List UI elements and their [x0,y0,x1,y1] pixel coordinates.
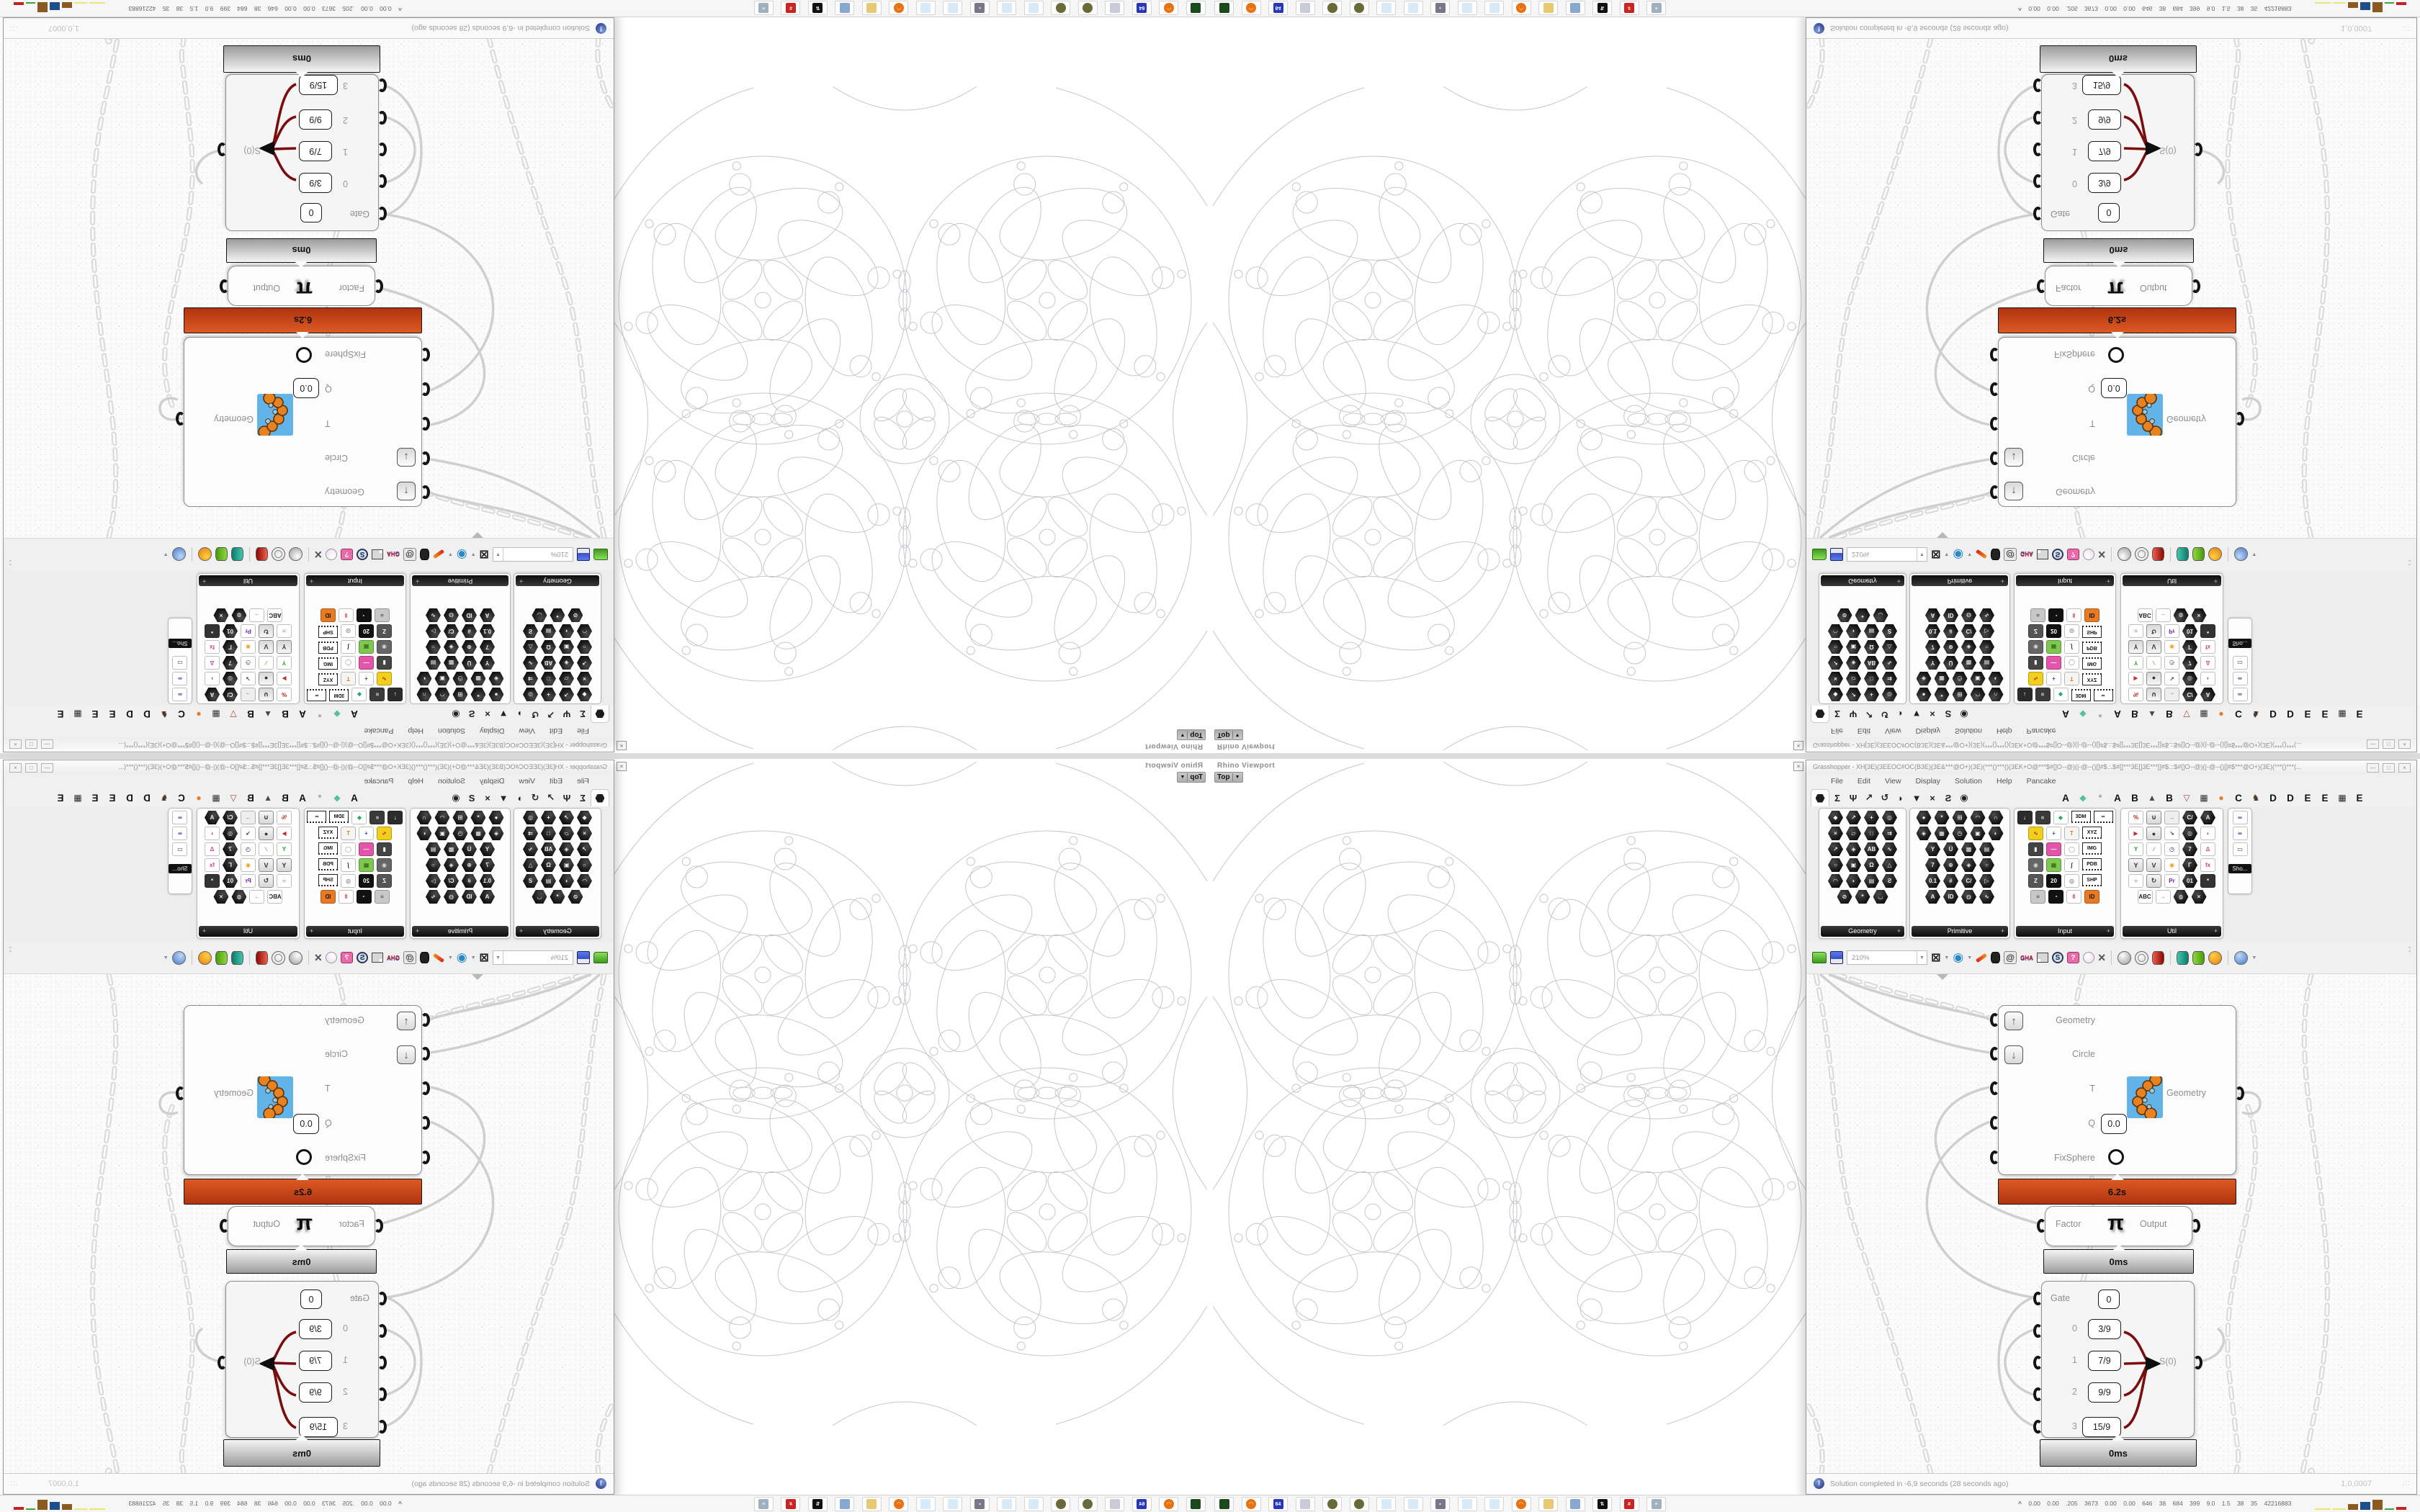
taskbar-notepad-icon[interactable] [1458,1,1477,15]
palette-icon[interactable]: Pr [2164,874,2179,888]
palette-hex-icon[interactable]: ◍ [444,890,459,904]
stream-value-box[interactable]: 3/9 [299,1319,332,1339]
window-resize-grip[interactable]: .:: [9,1480,17,1488]
tab-mesh-funnel[interactable]: ▼ [1909,709,1924,720]
toolbar-sphere-orange-icon[interactable] [198,949,212,966]
palette-hex-icon[interactable]: ▦ [471,672,486,685]
palette-hex-icon[interactable]: ◷ [453,672,468,685]
palette-hex-icon[interactable]: * [550,890,565,904]
chevron-down-icon[interactable]: ▼ [1180,732,1185,737]
palette-hex-icon[interactable]: * [1855,608,1870,622]
palette-icon[interactable]: ◷ [241,656,256,670]
palette-boxed-icon[interactable]: ● [259,827,274,840]
graft-arrow-down-icon[interactable]: ↓ [397,448,416,467]
toolbar-pink-box-icon[interactable]: ? [2067,952,2079,963]
taskbar-firefox-icon[interactable]: ◠ [1160,1497,1179,1511]
palette-hex-icon[interactable]: ● [1917,811,1932,824]
taskbar-document-icon[interactable] [1106,1,1125,15]
taskbar-folder-icon[interactable] [1538,1,1558,15]
palette-hex-icon[interactable]: Ƨ [523,874,538,888]
palette-hex-icon[interactable]: ▣ [1846,640,1861,654]
palette-hex-icon[interactable]: 01 [223,874,238,888]
palette-hex-icon[interactable]: ▷ [1979,874,1994,888]
palette-hex-icon[interactable]: ◡ [532,608,547,622]
stream-value-box[interactable]: 3/9 [2088,173,2121,193]
plugin-tab-b-6[interactable]: B [2161,793,2178,804]
stream-value-box[interactable]: 9/9 [2088,1382,2121,1403]
input-grip[interactable] [1990,451,1999,465]
palette-icon[interactable]: ○ [277,624,292,638]
palette-icon[interactable]: ○ [2128,874,2143,888]
palette-icon[interactable]: Z [377,624,392,638]
taskbar-red-grid-icon[interactable]: # [781,1,801,15]
palette-boxed-icon[interactable]: V [259,858,274,872]
toolbar-cross-arrows-icon[interactable]: × [2098,949,2106,966]
palette-hex-icon[interactable]: AB [1864,842,1879,856]
fixsphere-solver-component[interactable]: ↑ ↓ Geometry Circle T Q FixSphere 0.0 [1998,1005,2236,1175]
viewport-projection-button[interactable]: Top ▼ [1214,729,1243,740]
palette-chip-icon[interactable]: IMG [2082,842,2102,855]
plugin-tab-shield-icon[interactable]: ▽ [225,709,242,719]
palette-chip-icon[interactable]: SHP [2082,874,2102,886]
plugin-tab-waffle-dark-icon[interactable]: ▦ [69,793,86,803]
toolbar-cylinder-teal-icon[interactable] [231,949,243,966]
input-grip[interactable] [2033,111,2043,125]
taskbar-red-grid-icon[interactable]: # [1620,1497,1639,1511]
palette-boxed-icon[interactable]: V [2146,858,2161,872]
palette-icon[interactable]: Z [377,874,392,888]
menu-item-file[interactable]: File [1824,775,1850,789]
palette-expand-icon[interactable]: + [2001,575,2004,586]
palette-hex-icon[interactable]: ◍ [232,608,247,622]
input-grip[interactable] [1990,1151,1999,1164]
palette-hex-icon[interactable]: ◈ [489,672,504,685]
palette-hex-icon[interactable]: ▤ [426,842,441,856]
palette-hex-icon[interactable]: 7 [2182,656,2197,670]
palette-hex-icon[interactable]: + [541,688,556,701]
stream-value-box[interactable]: 15/9 [2082,75,2121,95]
palette-hex-icon[interactable]: ◎ [223,672,238,685]
palette-hex-icon[interactable]: ◐ [417,672,432,685]
tab-curve-spiral[interactable]: ↺ [1877,792,1893,804]
toolbar-at-ball-icon[interactable]: @ [403,951,416,964]
toolbar-viewport-capture-icon[interactable] [372,546,383,563]
palette-hex-icon[interactable]: ◈ [444,858,459,872]
palette-boxed-icon[interactable]: ↻ [259,874,274,888]
palette-icon[interactable]: fx [205,640,220,654]
graft-arrow-down-icon[interactable]: ↓ [2004,1045,2023,1064]
palette-icon[interactable]: ■ [2035,811,2051,824]
output-grip[interactable] [2191,279,2200,293]
palette-hex-icon[interactable]: ◈ [1961,640,1976,654]
plugin-tab-gem-icon[interactable]: ◆ [2074,709,2092,719]
panel-close-button[interactable]: × [617,762,627,771]
palette-hex-icon[interactable]: × [214,890,229,904]
plugin-tab-a-0[interactable]: A [2057,793,2074,804]
palette-chip-icon[interactable]: PDB [2082,642,2102,654]
menu-item-pancake[interactable]: Pancake [2020,775,2063,789]
chevron-down-icon[interactable]: ▼ [1180,775,1185,780]
taskbar-medal-icon[interactable] [1078,1,1098,15]
palette-chip-icon[interactable]: PDB [2082,858,2102,870]
tab-display-eye[interactable]: ◉ [1956,792,1972,804]
palette-hex-icon[interactable]: C/ [223,688,238,701]
menu-item-help[interactable]: Help [400,775,431,789]
palette-icon[interactable]: + [2046,827,2061,840]
palette-hex-icon[interactable]: ↗ [1828,656,1843,670]
stream-value-box[interactable]: 9/9 [299,109,332,130]
palette-hex-icon[interactable]: Y [480,656,495,670]
palette-icon[interactable]: ◉ [2164,640,2179,654]
plugin-tab-d-13[interactable]: D [121,793,138,804]
palette-icon[interactable]: ◉ [241,858,256,872]
palette-icon[interactable]: ∿ [2028,827,2043,840]
palette-icon[interactable]: ABC [268,890,283,904]
taskbar-notepad-icon[interactable] [998,1497,1017,1511]
palette-hex-icon[interactable]: ◍ [1961,608,1976,622]
palette-hex-icon[interactable]: ◠ [1971,688,1986,701]
toolbar-caret-icon[interactable]: ▼ [2251,546,2257,563]
palette-icon[interactable]: ∞ [173,811,188,824]
plugin-tab-e-14[interactable]: E [2299,793,2316,804]
toolbar-gha-badge-icon[interactable]: GHA [387,949,400,966]
palette-hex-icon[interactable]: ↗ [577,656,592,670]
tab-params-hexagon[interactable] [591,706,609,723]
output-grip[interactable] [218,1356,227,1369]
palette-hex-icon[interactable]: ◎ [1882,688,1897,701]
toolbar-cylinder-green-icon[interactable] [215,949,228,966]
palette-hex-icon[interactable]: C/ [1961,624,1976,638]
fixsphere-solver-component[interactable]: ↑ ↓ Geometry Circle T Q FixSphere 0.0 [184,1005,422,1175]
palette-hex-icon[interactable]: △ [523,640,538,654]
palette-hex-icon[interactable]: ⊘ [568,890,583,904]
palette-hex-icon[interactable]: 0.1 [1925,874,1940,888]
palette-expand-icon[interactable]: + [2214,926,2218,937]
input-grip[interactable] [374,1219,383,1233]
palette-hex-icon[interactable]: Ƨ [523,624,538,638]
input-grip[interactable] [421,417,430,431]
toolbar-cross-arrows-icon[interactable]: × [315,546,323,563]
palette-icon[interactable]: 20 [359,624,374,638]
palette-icon[interactable]: ◉ [241,640,256,654]
palette-icon[interactable]: % [2128,688,2143,701]
grasshopper-canvas[interactable]: ↑ ↓ Geometry Circle T Q FixSphere 0.0 [4,973,613,1473]
plugin-tab-gear-icon[interactable]: * [2092,793,2109,803]
plugin-tab-d-13[interactable]: D [121,709,138,720]
taskbar-notepad-icon[interactable] [944,1497,963,1511]
palette-icon[interactable]: * [2200,624,2215,638]
plugin-tab-b-4[interactable]: B [277,793,294,804]
palette-hex-icon[interactable]: ▦ [1935,672,1950,685]
menu-item-solution[interactable]: Solution [1948,775,1989,789]
palette-hex-icon[interactable]: ⊕ [1943,640,1958,654]
palette-icon[interactable]: ◷ [241,842,256,856]
input-grip[interactable] [421,382,430,396]
fixsphere-solver-component[interactable]: ↑ ↓ Geometry Circle T Q FixSphere 0.0 [184,337,422,507]
palette-chip-icon[interactable]: SHP [318,626,338,638]
viewport-projection-button[interactable]: Top ▼ [1177,729,1206,740]
palette-hex-icon[interactable]: ▷ [426,624,441,638]
tab-surface-leaf[interactable]: ◗ [511,793,527,804]
taskbar-notepad-icon[interactable] [1404,1,1423,15]
palette-hex-icon[interactable]: Ü [462,656,477,670]
palette-hex-icon[interactable]: Γ [2182,640,2197,654]
fixsphere-solver-component[interactable]: ↑ ↓ Geometry Circle T Q FixSphere 0.0 [1998,337,2236,507]
plugin-tab-a-3[interactable]: A [2109,709,2126,720]
palette-icon[interactable]: ■ [370,688,385,701]
palette-group-label[interactable]: Util+ [2123,575,2221,586]
palette-group-label[interactable]: Primitive+ [1912,926,2008,937]
palette-hex-icon[interactable]: * [471,688,486,701]
palette-hex-icon[interactable]: ◎ [523,811,538,824]
toolbar-bulb-icon[interactable] [326,949,337,966]
palette-icon[interactable]: ‖ [2066,608,2081,622]
palette-hex-icon[interactable]: AB [541,842,556,856]
toolbar-sketch-pen-icon[interactable] [1976,949,1987,966]
palette-hex-icon[interactable]: ◈ [1961,858,1976,872]
input-grip[interactable] [374,279,383,293]
flatten-arrow-up-icon[interactable]: ↑ [397,1012,416,1030]
palette-hex-icon[interactable]: Γ [223,640,238,654]
palette-icon[interactable]: ∿ [2028,672,2043,685]
palette-icon[interactable]: ◉ [2028,640,2043,654]
palette-hex-icon[interactable]: 01 [2182,624,2197,638]
palette-hex-icon[interactable]: ● [489,811,504,824]
toolbar-sphere-orange-icon[interactable] [198,546,212,563]
palette-hex-icon[interactable]: ⊞ [453,811,468,824]
palette-hex-icon[interactable]: ⊞ [453,688,468,701]
palette-hex-icon[interactable]: ∿ [1979,890,1994,904]
toolbar-overflow-chevron[interactable]: ⌄⌄ [2407,560,2412,567]
window-resize-grip[interactable]: .:: [9,24,17,32]
plugin-tab-dot-icon[interactable]: ● [2213,793,2230,803]
palette-icon[interactable]: ▦ [2046,858,2061,872]
palette-icon[interactable]: ABC [2138,608,2153,622]
palette-hex-icon[interactable]: ⊞ [1953,811,1968,824]
menu-item-display[interactable]: Display [472,723,511,737]
palette-expand-icon[interactable]: + [2107,926,2110,937]
plugin-tab-dot-icon[interactable]: ● [2213,709,2230,719]
taskbar-firefox-icon[interactable]: ◠ [1512,1,1531,15]
palette-expand-icon[interactable]: + [202,926,206,937]
fixsphere-toggle[interactable] [296,347,312,363]
q-value-box[interactable]: 0.0 [2101,378,2127,398]
tab-transform-ear[interactable]: Ƨ [1940,793,1956,804]
palette-icon[interactable]: Pr [2164,624,2179,638]
palette-icon[interactable]: ▭ [2233,842,2248,856]
toolbar-open-folder-icon[interactable] [593,949,608,966]
plugin-tab-b-6[interactable]: B [2161,709,2178,720]
toolbar-bulb-icon[interactable] [326,546,337,563]
palette-group-label[interactable]: Util+ [199,575,297,586]
palette-hex-icon[interactable]: 01 [2182,874,2197,888]
plugin-tab-shield-icon[interactable]: ▽ [225,793,242,803]
input-grip[interactable] [2033,207,2043,220]
stream-value-box[interactable]: 3/9 [299,173,332,193]
palette-chip-icon[interactable]: 3DM [2071,811,2091,823]
toolbar-gha-badge-icon[interactable]: GHA [2020,949,2033,966]
toolbar-zoom-extents-icon[interactable]: ⊠ [1931,949,1940,966]
palette-icon[interactable]: ∞ [173,672,188,685]
plugin-tab-d-13[interactable]: D [2282,709,2299,720]
toolbar-sphere-ring-icon[interactable] [2135,546,2148,563]
palette-icon[interactable]: ◎ [341,624,356,638]
chevron-down-icon[interactable]: ▼ [1917,951,1927,964]
panel-close-button[interactable]: × [1793,741,1803,750]
input-grip[interactable] [2033,78,2043,92]
palette-icon[interactable]: ▭ [173,842,188,856]
palette-icon[interactable]: T [2064,672,2079,685]
taskbar-notepad-icon[interactable] [1404,1497,1423,1511]
palette-icon[interactable]: ID [2084,890,2099,904]
toolbar-ball-blue-icon[interactable] [172,546,186,563]
palette-icon[interactable]: → [250,608,265,622]
plugin-tab-waffle-dark-icon[interactable]: ▦ [69,709,86,719]
palette-hex-icon[interactable]: ◍ [444,608,459,622]
toolbar-loupe-s-icon[interactable]: S [357,549,368,560]
plugin-tab-d-12[interactable]: D [2264,793,2282,804]
palette-icon[interactable]: ◉ [2028,858,2043,872]
taskbar-vm-green-icon[interactable] [1214,1,1234,15]
palette-boxed-icon[interactable]: ↻ [2146,874,2161,888]
toolbar-loupe-s-icon[interactable]: S [357,952,368,963]
palette-hex-icon[interactable]: * [471,811,486,824]
palette-hex-icon[interactable]: ID [1943,608,1958,622]
palette-boxed-icon[interactable]: Y [2128,640,2143,654]
plugin-tab-shield-icon[interactable]: ▽ [2178,709,2195,719]
toolbar-cross-arrows-icon[interactable]: × [2098,546,2106,563]
tab-curve-spiral[interactable]: ↺ [527,708,543,720]
canvas-zoom-input[interactable]: 210%▼ [493,547,573,562]
palette-hex-icon[interactable]: ◡ [1873,890,1888,904]
tab-maths-sigma[interactable]: Σ [1829,793,1845,804]
palette-chip-icon[interactable]: IMG [318,657,338,670]
palette-icon[interactable]: ■ [2035,688,2051,701]
graft-arrow-down-icon[interactable]: ↓ [397,1045,416,1064]
input-grip[interactable] [377,78,387,92]
palette-icon[interactable]: ◔ [357,890,372,904]
tab-intersect-cross[interactable]: × [1924,709,1940,720]
palette-hex-icon[interactable]: Ü [1943,656,1958,670]
plugin-tab-waffle-icon[interactable]: ▦ [207,793,225,803]
palette-group-label[interactable]: Primitive+ [412,575,508,586]
menu-item-pancake[interactable]: Pancake [357,723,401,737]
toolbar-caret-icon[interactable]: ▼ [471,949,476,966]
palette-icon[interactable]: Y [2128,842,2143,856]
palette-group-label[interactable]: Util+ [2123,926,2221,937]
input-grip[interactable] [2033,1292,2043,1305]
palette-hex-icon[interactable]: 01 [223,624,238,638]
plugin-tab-a-3[interactable]: A [294,793,311,804]
plugin-tab-c-10[interactable]: C [2230,793,2247,804]
palette-hex-icon[interactable]: ● [489,688,504,701]
taskbar-plug-icon[interactable] [835,1497,855,1511]
pi-component[interactable]: Factor π Output [2045,1206,2192,1246]
palette-icon[interactable]: ↓ [2017,811,2033,824]
toolbar-caret-icon[interactable]: ▼ [163,949,169,966]
palette-hex-icon[interactable]: ▣ [559,858,574,872]
palette-icon[interactable]: ↘ [2164,827,2179,840]
stream-gate-component[interactable]: Gate 0 03/917/929/9315/9 [225,74,379,231]
palette-hex-icon[interactable]: ◗ [559,874,574,888]
palette-hex-icon[interactable]: ▤ [1979,656,1994,670]
input-grip[interactable] [2033,143,2043,156]
palette-hex-icon[interactable]: A [1925,608,1940,622]
palette-hex-icon[interactable]: ◎ [1882,811,1897,824]
palette-hex-icon[interactable]: ∩ [1989,811,2004,824]
toolbar-save-floppy-icon[interactable] [577,949,590,966]
menu-item-view[interactable]: View [1878,775,1909,789]
output-grip[interactable] [2191,1219,2200,1233]
palette-hex-icon[interactable]: △ [1882,858,1897,872]
menu-item-solution[interactable]: Solution [431,723,472,737]
palette-icon[interactable]: ∿ [377,827,392,840]
palette-icon[interactable]: fx [2200,640,2215,654]
taskbar-plug-icon[interactable] [835,1,855,15]
toolbar-sphere-ring-icon[interactable] [272,949,285,966]
taskbar-firefox-icon[interactable]: ◠ [1512,1497,1531,1511]
plugin-tab-b-4[interactable]: B [2126,793,2143,804]
palette-hex-icon[interactable]: ▩ [1961,656,1976,670]
palette-icon[interactable]: ≡ [375,890,390,904]
palette-hex-icon[interactable]: ◗ [1846,624,1861,638]
palette-expand-icon[interactable]: + [2214,575,2218,586]
palette-hex-icon[interactable]: Y [1925,656,1940,670]
palette-chip-icon[interactable]: IMG [2082,657,2102,670]
taskbar-arrows-icon[interactable]: ⇅ [1592,1,1612,15]
palette-hex-icon[interactable]: ID [462,608,477,622]
stream-value-box[interactable]: 9/9 [299,1382,332,1403]
toolbar-cylinder-teal-icon[interactable] [2177,949,2189,966]
palette-icon[interactable]: T [341,672,356,685]
palette-hex-icon[interactable]: ◠ [1971,811,1986,824]
palette-hex-icon[interactable]: AB [1864,656,1879,670]
palette-hex-icon[interactable]: □ [1864,827,1879,840]
palette-hex-icon[interactable]: ● [1917,688,1932,701]
input-grip[interactable] [1990,382,1999,396]
palette-icon[interactable]: ◷ [2164,656,2179,670]
taskbar-red-grid-icon[interactable]: # [1620,1,1639,15]
palette-chip-icon[interactable]: ∞ [2094,689,2113,701]
taskbar-firefox-icon[interactable]: ◠ [889,1,909,15]
plugin-tab-mountain-icon[interactable]: ▲ [2143,709,2161,719]
flatten-arrow-up-icon[interactable]: ↑ [2004,482,2023,500]
tab-curve-spiral[interactable]: ↺ [1877,708,1893,720]
palette-hex-icon[interactable]: ⊕ [462,640,477,654]
plugin-tab-a-0[interactable]: A [346,709,363,720]
palette-expand-icon[interactable]: + [310,575,313,586]
palette-hex-icon[interactable]: × [577,827,592,840]
palette-hex-icon[interactable]: ▩ [444,656,459,670]
palette-hex-icon[interactable]: ⊘ [1837,608,1852,622]
palette-icon[interactable]: → [2164,811,2179,824]
toolbar-loupe-s-icon[interactable]: S [2052,952,2063,963]
palette-hex-icon[interactable]: A [480,890,495,904]
palette-expand-icon[interactable]: + [519,926,523,937]
palette-group-label[interactable]: Primitive+ [1912,575,2008,586]
toolbar-sketch-pen-icon[interactable] [433,949,444,966]
taskbar-document-icon[interactable] [1296,1,1315,15]
plugin-tab-gear-icon[interactable]: * [2092,709,2109,719]
palette-hex-icon[interactable]: ⊘ [568,608,583,622]
palette-boxed-icon[interactable]: ● [2146,672,2161,685]
palette-icon[interactable]: fx [2200,858,2215,872]
taskbar-notepad-icon[interactable] [916,1,936,15]
plugin-tab-bird-icon[interactable]: ♞ [2247,709,2264,719]
tab-sets-plant[interactable]: Ψ [559,793,575,804]
palette-boxed-icon[interactable]: ↻ [259,624,274,638]
palette-hex-icon[interactable]: ∿ [426,890,441,904]
